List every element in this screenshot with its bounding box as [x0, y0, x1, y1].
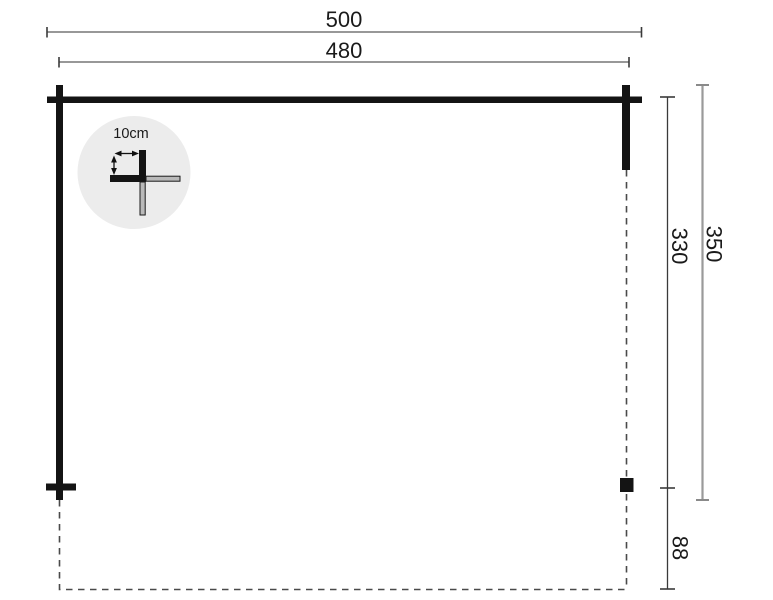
- dim-width-inner-label: 480: [326, 38, 363, 63]
- dim-width-inner: 480: [59, 38, 629, 68]
- detail-beam-horizontal-gray: [146, 176, 180, 181]
- detail-beam-vertical-gray: [140, 182, 145, 215]
- dim-depth-inner-label: 330: [667, 228, 692, 265]
- right-front-post: [622, 85, 630, 170]
- right-rear-post-square: [620, 478, 634, 492]
- dim-rear-overhang-label: 88: [668, 536, 693, 560]
- dashed-outline: [60, 170, 627, 590]
- floor-plan-canvas: 500 480 330 88: [0, 0, 773, 600]
- dim-depth-outer: 350: [696, 85, 727, 500]
- dashed-outline-left-bottom: [60, 500, 627, 590]
- dim-depth-outer-label: 350: [702, 226, 727, 263]
- floor-plan-drawing: 500 480 330 88: [0, 0, 773, 600]
- dim-width-outer-label: 500: [326, 7, 363, 32]
- left-side-beam: [56, 85, 63, 500]
- detail-beam-horizontal-black: [110, 175, 146, 182]
- front-beam: [47, 97, 642, 104]
- dim-width-outer: 500: [47, 7, 642, 38]
- left-rear-crossbar: [46, 484, 76, 491]
- corner-detail: 10cm: [78, 116, 191, 229]
- dim-depth-inner: 330 88: [660, 97, 693, 589]
- detail-beam-size-label: 10cm: [113, 126, 148, 142]
